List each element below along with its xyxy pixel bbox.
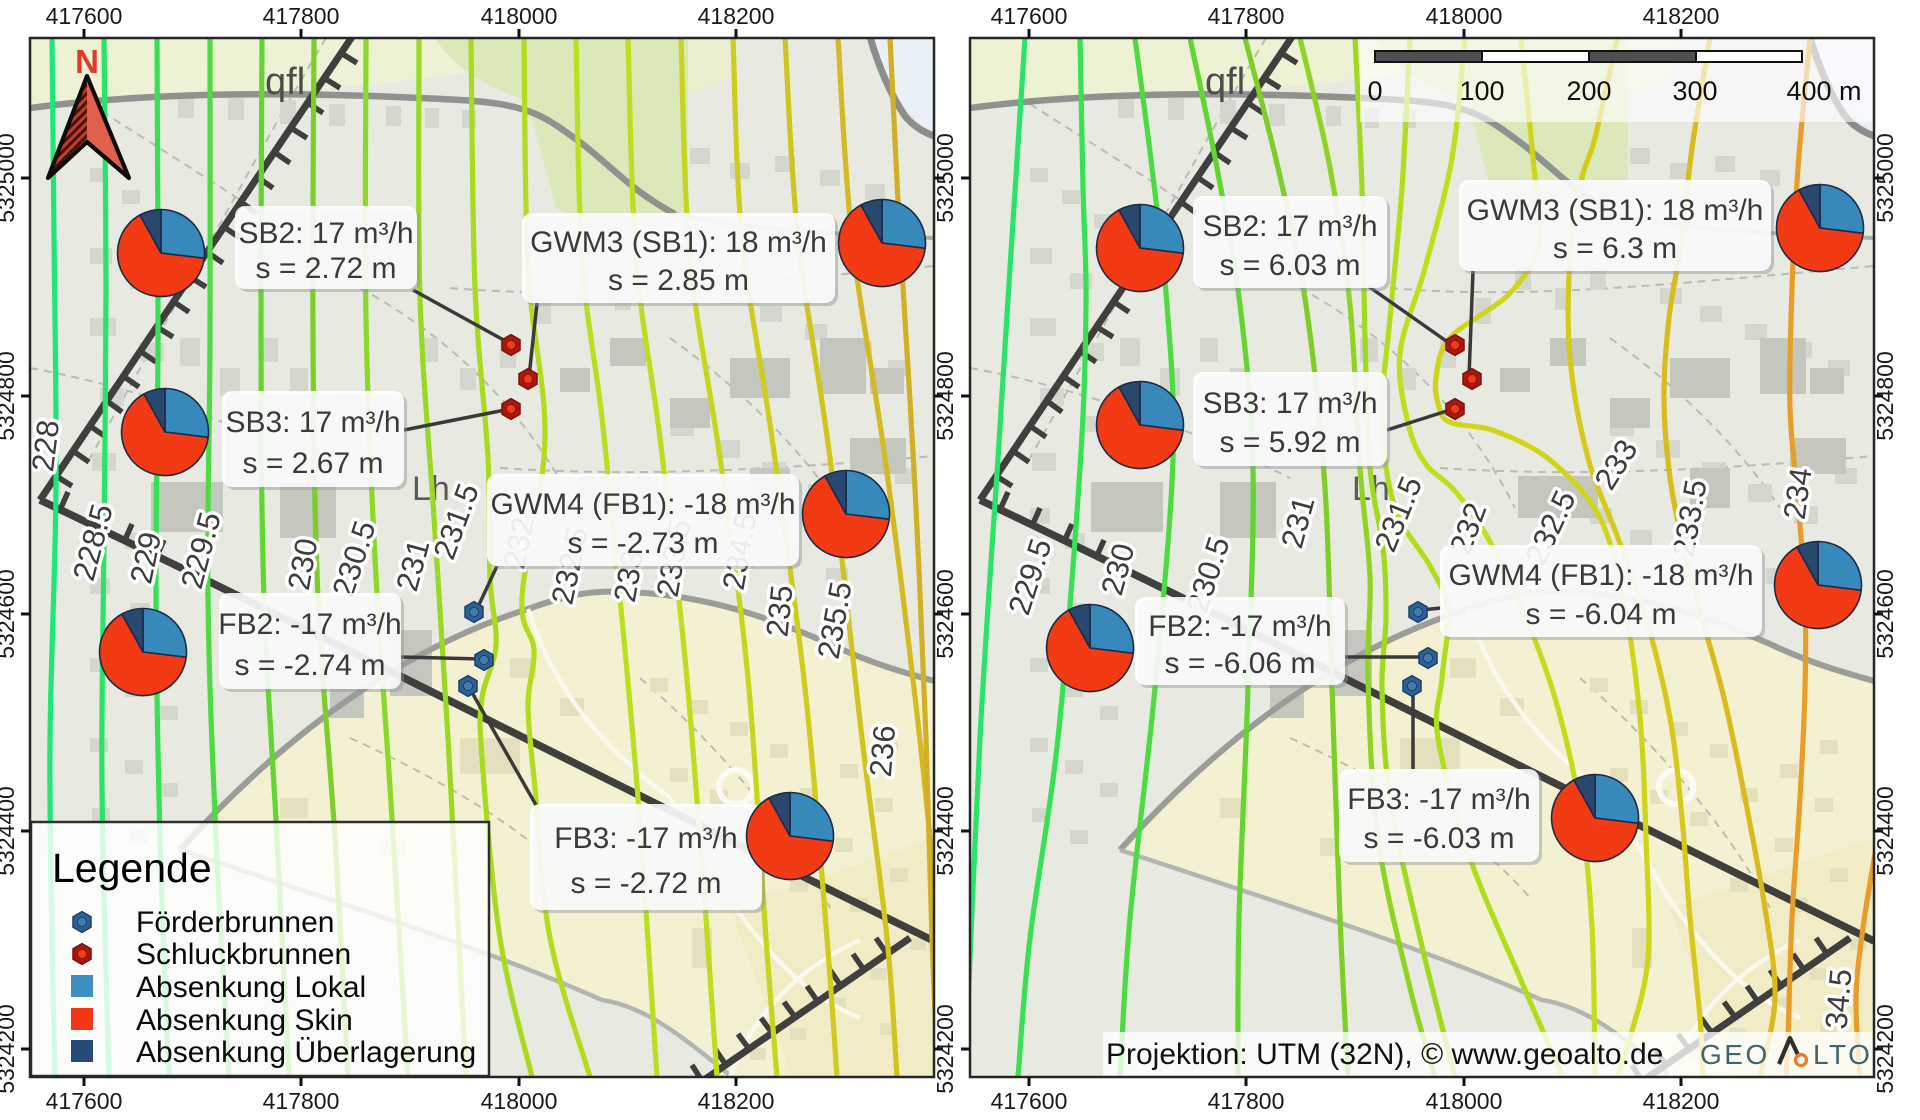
svg-text:s = 5.92 m: s = 5.92 m bbox=[1220, 426, 1361, 459]
svg-text:s = -2.73 m: s = -2.73 m bbox=[568, 527, 719, 560]
svg-text:GWM4 (FB1): -18 m³/h: GWM4 (FB1): -18 m³/h bbox=[490, 488, 795, 521]
svg-text:418200: 418200 bbox=[698, 1088, 775, 1114]
svg-text:418200: 418200 bbox=[1643, 3, 1720, 29]
svg-text:5324200: 5324200 bbox=[932, 1004, 958, 1094]
svg-text:5324800: 5324800 bbox=[932, 351, 958, 441]
svg-text:5325000: 5325000 bbox=[932, 133, 958, 223]
svg-text:417800: 417800 bbox=[1208, 3, 1285, 29]
svg-text:417600: 417600 bbox=[991, 3, 1068, 29]
svg-text:417600: 417600 bbox=[46, 3, 123, 29]
svg-text:Legende: Legende bbox=[52, 845, 212, 891]
svg-text:Absenkung Lokal: Absenkung Lokal bbox=[136, 971, 366, 1004]
svg-text:SB2: 17 m³/h: SB2: 17 m³/h bbox=[1202, 210, 1377, 243]
svg-text:s = 2.67 m: s = 2.67 m bbox=[243, 447, 384, 480]
svg-text:SB2: 17 m³/h: SB2: 17 m³/h bbox=[238, 217, 413, 250]
svg-text:5324400: 5324400 bbox=[932, 786, 958, 876]
svg-text:5325000: 5325000 bbox=[1872, 133, 1898, 223]
svg-text:s = 2.72 m: s = 2.72 m bbox=[256, 252, 397, 285]
svg-text:0: 0 bbox=[1367, 76, 1382, 106]
svg-text:s = -2.72 m: s = -2.72 m bbox=[571, 867, 722, 900]
svg-text:SB3: 17 m³/h: SB3: 17 m³/h bbox=[225, 406, 400, 439]
svg-text:5324600: 5324600 bbox=[0, 569, 19, 659]
svg-text:235: 235 bbox=[759, 583, 799, 638]
svg-text:SB3: 17 m³/h: SB3: 17 m³/h bbox=[1202, 387, 1377, 420]
svg-text:100: 100 bbox=[1459, 76, 1504, 106]
svg-text:s = 6.03 m: s = 6.03 m bbox=[1220, 249, 1361, 282]
svg-text:418000: 418000 bbox=[1426, 3, 1503, 29]
svg-text:FB3: -17 m³/h: FB3: -17 m³/h bbox=[1347, 783, 1530, 816]
svg-text:300: 300 bbox=[1672, 76, 1717, 106]
svg-text:Projektion: UTM (32N), © www.g: Projektion: UTM (32N), © www.geoalto.de bbox=[1106, 1038, 1663, 1071]
svg-text:400 m: 400 m bbox=[1786, 76, 1861, 106]
svg-text:GEO: GEO bbox=[1700, 1039, 1770, 1070]
svg-text:417800: 417800 bbox=[263, 1088, 340, 1114]
svg-text:GWM3 (SB1): 18 m³/h: GWM3 (SB1): 18 m³/h bbox=[1467, 194, 1764, 227]
svg-text:s = -6.04 m: s = -6.04 m bbox=[1526, 598, 1677, 631]
svg-text:417600: 417600 bbox=[46, 1088, 123, 1114]
svg-text:FB2: -17 m³/h: FB2: -17 m³/h bbox=[1148, 610, 1331, 643]
svg-text:s = -2.74 m: s = -2.74 m bbox=[235, 649, 386, 682]
svg-text:34.5: 34.5 bbox=[1818, 968, 1858, 1031]
svg-text:234: 234 bbox=[1777, 465, 1819, 521]
svg-text:GWM3 (SB1): 18 m³/h: GWM3 (SB1): 18 m³/h bbox=[530, 226, 827, 259]
svg-text:418000: 418000 bbox=[481, 3, 558, 29]
svg-text:s = 2.85 m: s = 2.85 m bbox=[608, 264, 749, 297]
svg-text:418200: 418200 bbox=[698, 3, 775, 29]
svg-text:FB3: -17 m³/h: FB3: -17 m³/h bbox=[554, 822, 737, 855]
svg-text:LTO: LTO bbox=[1813, 1039, 1872, 1070]
svg-text:418000: 418000 bbox=[1426, 1088, 1503, 1114]
svg-text:s = -6.03 m: s = -6.03 m bbox=[1364, 822, 1515, 855]
svg-text:GWM4 (FB1): -18 m³/h: GWM4 (FB1): -18 m³/h bbox=[1448, 559, 1753, 592]
svg-text:Absenkung Überlagerung: Absenkung Überlagerung bbox=[136, 1036, 476, 1069]
svg-text:5324400: 5324400 bbox=[0, 786, 19, 876]
svg-text:5325000: 5325000 bbox=[0, 133, 19, 223]
svg-text:418200: 418200 bbox=[1643, 1088, 1720, 1114]
svg-text:417800: 417800 bbox=[1208, 1088, 1285, 1114]
svg-text:Absenkung Skin: Absenkung Skin bbox=[136, 1004, 353, 1037]
svg-text:FB2: -17 m³/h: FB2: -17 m³/h bbox=[218, 608, 401, 641]
svg-text:5324600: 5324600 bbox=[1872, 569, 1898, 659]
svg-text:s = -6.06 m: s = -6.06 m bbox=[1165, 647, 1316, 680]
svg-text:5324200: 5324200 bbox=[1872, 1004, 1898, 1094]
svg-text:5324800: 5324800 bbox=[1872, 351, 1898, 441]
svg-text:s = 6.3 m: s = 6.3 m bbox=[1553, 232, 1677, 265]
svg-text:5324800: 5324800 bbox=[0, 351, 19, 441]
svg-text:417800: 417800 bbox=[263, 3, 340, 29]
svg-text:417600: 417600 bbox=[991, 1088, 1068, 1114]
svg-text:5324200: 5324200 bbox=[0, 1004, 19, 1094]
svg-text:Schluckbrunnen: Schluckbrunnen bbox=[136, 938, 351, 971]
svg-text:236: 236 bbox=[863, 724, 902, 779]
svg-text:200: 200 bbox=[1566, 76, 1611, 106]
svg-text:418000: 418000 bbox=[481, 1088, 558, 1114]
svg-text:Förderbrunnen: Förderbrunnen bbox=[136, 906, 334, 939]
svg-text:5324400: 5324400 bbox=[1872, 786, 1898, 876]
svg-text:5324600: 5324600 bbox=[932, 569, 958, 659]
